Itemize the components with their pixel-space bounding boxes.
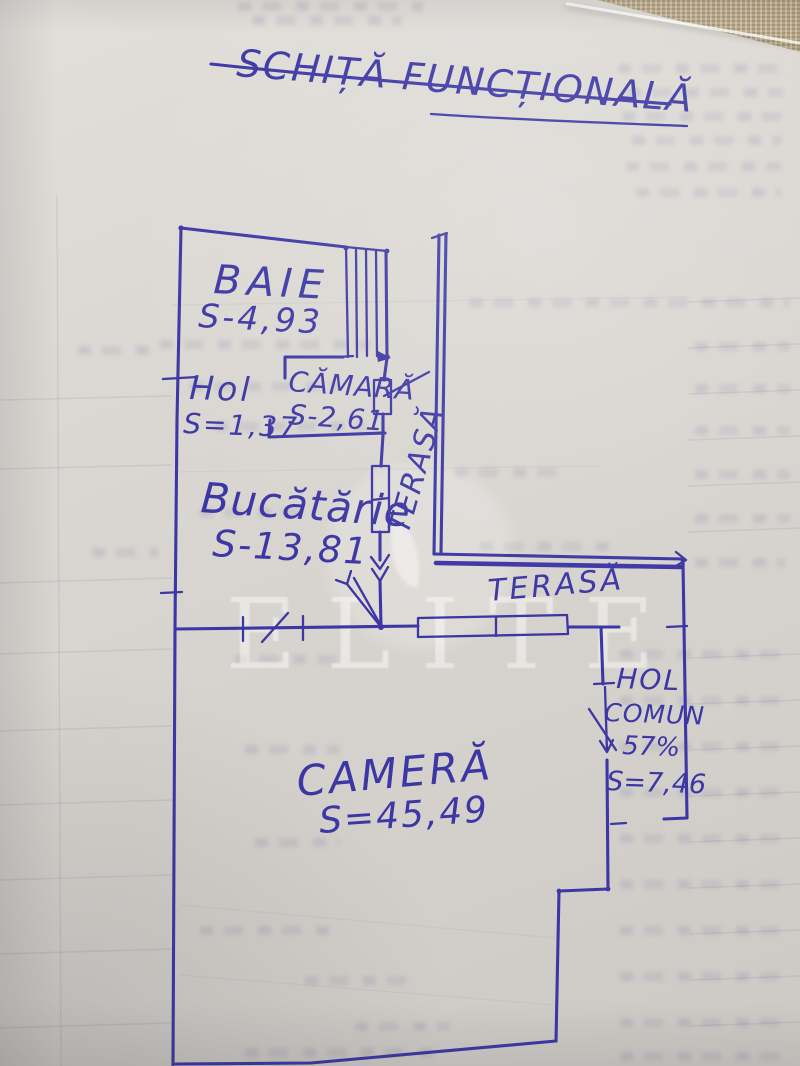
wall-bottom [176, 1041, 556, 1064]
kitchen-door-swing [336, 571, 381, 627]
label-hol-comun-2: COMUN [604, 698, 706, 730]
label-bucatarie-area: S-13,81 [212, 522, 371, 573]
label-camara-area: S-2,61 [288, 398, 386, 438]
label-hol: Hol [189, 368, 254, 409]
wall-top-baie [181, 228, 346, 247]
page-title: SCHIȚĂ FUNCȚIONALĂ [235, 41, 695, 121]
label-hol-comun-area: S=7,46 [606, 766, 707, 800]
hatched-shaft [338, 247, 391, 362]
floor-plan-drawing: SCHIȚĂ FUNCȚIONALĂ [0, 0, 800, 1066]
label-hol-area: S=1,37 [183, 407, 300, 444]
wall-step [556, 889, 608, 1041]
label-hol-comun-share: 57% [622, 731, 681, 763]
walls [161, 225, 687, 1066]
terrace-window [418, 615, 568, 637]
label-hol-comun: HOL [616, 662, 682, 697]
wall-left [173, 228, 181, 1066]
label-baie-area: S-4,93 [198, 296, 324, 341]
label-terasa-front: TERASĂ [487, 561, 626, 609]
terrace-walls [432, 233, 686, 567]
floor-plan-photo: ELITE SCHIȚĂ FUNCȚIONALĂ [0, 0, 800, 1066]
